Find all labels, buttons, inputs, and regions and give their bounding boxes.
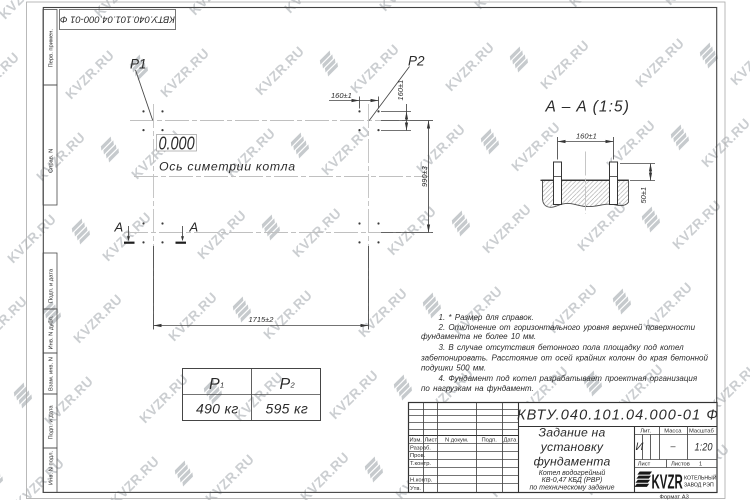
svg-text:A: A	[114, 220, 124, 235]
svg-text:КВТУ.040.101.04.000-01 Ф: КВТУ.040.101.04.000-01 Ф	[517, 408, 719, 424]
svg-text:Пров.: Пров.	[410, 453, 426, 459]
svg-text:1. * Размер для справок.: 1. * Размер для справок.	[439, 313, 534, 322]
svg-text:КОТЕЛЬНЫЙ: КОТЕЛЬНЫЙ	[684, 474, 717, 482]
svg-text:595 кг: 595 кг	[266, 401, 309, 417]
svg-text:2. Отклонение от горизонтальн: 2. Отклонение от горизонтального уровня …	[438, 323, 696, 332]
svg-text:Масштаб: Масштаб	[689, 428, 714, 434]
svg-text:50±1: 50±1	[639, 187, 648, 204]
svg-text:Листов: Листов	[671, 462, 690, 468]
svg-text:Котел водогрейный: Котел водогрейный	[539, 469, 606, 477]
svg-text:Разраб.: Разраб.	[410, 445, 431, 451]
svg-text:Лист: Лист	[425, 438, 438, 444]
svg-text:990±3: 990±3	[420, 165, 429, 187]
svg-text:по техническому задание: по техническому задание	[529, 483, 614, 491]
svg-text:1:20: 1:20	[695, 442, 713, 454]
svg-text:установку: установку	[540, 440, 604, 454]
svg-text:P1: P1	[130, 57, 147, 72]
svg-text:Подп.: Подп.	[482, 438, 498, 444]
svg-text:Задание на: Задание на	[539, 426, 606, 440]
svg-text:фундамента не более 10 мм.: фундамента не более 10 мм.	[421, 332, 536, 341]
svg-text:KVZR: KVZR	[652, 470, 683, 493]
svg-text:Формат А3: Формат А3	[660, 494, 689, 500]
svg-text:Инв. N дубл.: Инв. N дубл.	[49, 315, 55, 349]
svg-text:Масса: Масса	[664, 428, 682, 434]
svg-text:КВ-0,47 КБД (РВР): КВ-0,47 КБД (РВР)	[542, 477, 603, 484]
svg-text:Утв.: Утв.	[410, 486, 421, 492]
svg-text:Ось симетрии котла: Ось симетрии котла	[159, 160, 296, 174]
svg-text:1715±2: 1715±2	[249, 315, 275, 324]
svg-text:A – A (1:5): A – A (1:5)	[545, 99, 630, 116]
svg-text:Справ. N: Справ. N	[49, 149, 55, 173]
svg-text:1: 1	[699, 461, 702, 467]
svg-text:4. Фундамент под котел разраб: 4. Фундамент под котел разрабатывает про…	[439, 374, 698, 383]
svg-text:ЗАВОД РЭП: ЗАВОД РЭП	[684, 482, 714, 488]
svg-text:Т.контр.: Т.контр.	[410, 461, 431, 467]
svg-text:Инв. N подл.: Инв. N подл.	[49, 451, 55, 485]
svg-text:Подп. и дата: Подп. и дата	[49, 268, 55, 303]
svg-text:N докум.: N докум.	[445, 438, 469, 444]
svg-text:Лит.: Лит.	[640, 428, 651, 434]
svg-text:Изм.: Изм.	[410, 438, 423, 444]
svg-text:160±1: 160±1	[396, 80, 405, 101]
svg-text:1: 1	[220, 381, 224, 390]
svg-text:подушки 500 мм.: подушки 500 мм.	[421, 363, 486, 372]
svg-text:160±1: 160±1	[576, 132, 597, 141]
svg-text:Взам. инв. N: Взам. инв. N	[49, 357, 55, 391]
svg-text:КВТУ.040.101.04.000-01 Ф: КВТУ.040.101.04.000-01 Ф	[60, 13, 175, 24]
svg-text:0.000: 0.000	[159, 133, 196, 154]
svg-text:И: И	[636, 441, 644, 453]
svg-text:забетонировать. Расстояние от: забетонировать. Расстояние от осей крайн…	[420, 353, 708, 362]
svg-text:160±1: 160±1	[331, 91, 352, 100]
svg-text:Перв. примен.: Перв. примен.	[49, 29, 55, 68]
svg-text:P: P	[280, 376, 291, 393]
svg-text:A: A	[189, 220, 199, 235]
svg-text:Подп. и дата: Подп. и дата	[49, 405, 55, 440]
svg-text:P2: P2	[408, 54, 425, 69]
svg-text:по нагрузкам на фундамент.: по нагрузкам на фундамент.	[421, 384, 534, 393]
svg-text:490 кг: 490 кг	[196, 401, 239, 417]
svg-text:Н.контр.: Н.контр.	[410, 478, 433, 484]
svg-text:фундамента: фундамента	[534, 455, 611, 469]
svg-text:–: –	[670, 441, 677, 451]
svg-text:Лист: Лист	[638, 462, 651, 468]
svg-text:P: P	[209, 376, 220, 393]
svg-text:2: 2	[290, 381, 296, 390]
svg-text:Дата: Дата	[504, 438, 518, 444]
svg-text:3. В случае отсутствия бетонн: 3. В случае отсутствия бетонного пола пл…	[439, 343, 685, 352]
